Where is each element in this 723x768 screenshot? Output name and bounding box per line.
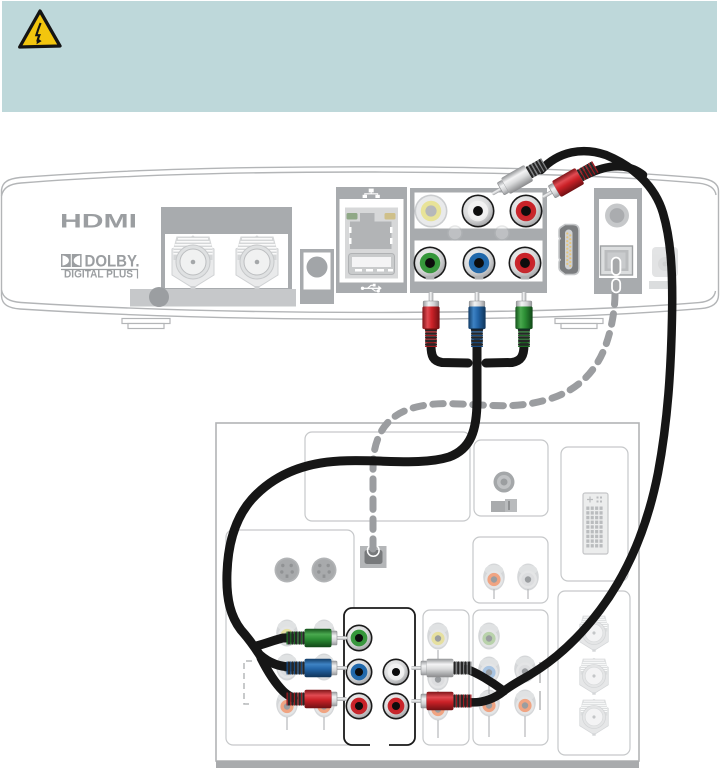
svg-text:HDMI: HDMI <box>60 212 137 233</box>
svg-text:DIGITAL PLUS: DIGITAL PLUS <box>64 269 133 281</box>
svg-text:DOLBY.: DOLBY. <box>85 252 140 270</box>
